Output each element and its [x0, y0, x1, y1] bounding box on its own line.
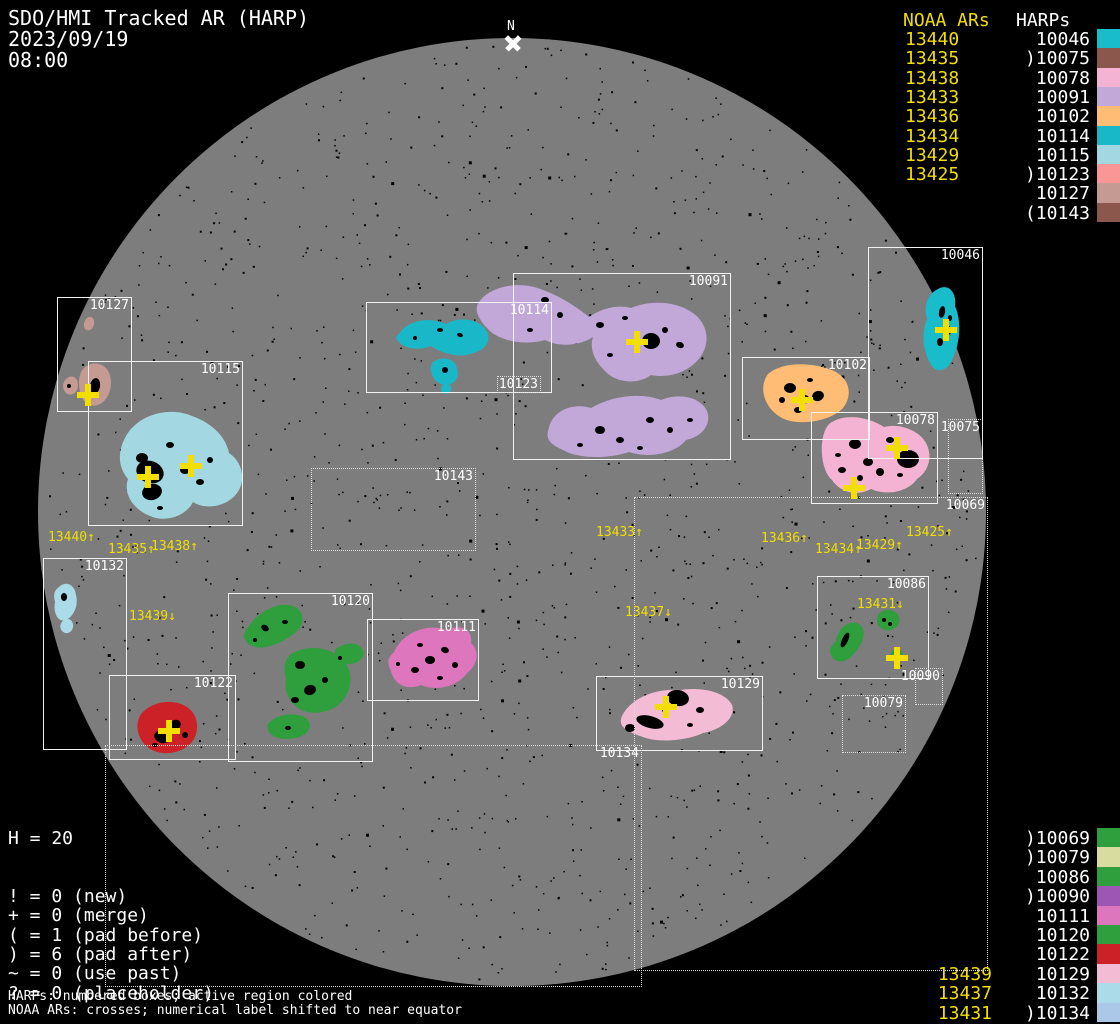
legend-harp-entry: 10078	[980, 69, 1090, 88]
legend-noaa-entry: 13433	[905, 88, 959, 107]
legend-harp-entry: 10129	[980, 965, 1090, 984]
harp-box-10111: 10111	[367, 619, 479, 701]
harp-box-label: 10127	[90, 299, 129, 312]
legend-color-swatch	[1097, 203, 1120, 223]
legend-noaa-entry: 13437	[902, 984, 992, 1003]
harp-box-label: 10091	[689, 275, 728, 288]
harp-box-label: 10115	[201, 363, 240, 376]
legend-harp-entry: 10120	[980, 926, 1090, 945]
harp-box-10143: 10143	[311, 468, 476, 551]
harp-box-10134: 10134	[105, 745, 642, 987]
harp-box-label: 10078	[896, 414, 935, 427]
harp-box-label: 10134	[600, 747, 639, 760]
legend-harp-entry: 10114	[980, 127, 1090, 146]
legend-noaa-entry: 13435	[905, 49, 959, 68]
legend-noaa-entry: 13438	[905, 69, 959, 88]
legend-color-swatch	[1097, 867, 1120, 887]
footnote-line: HARPs: numbered boxes; active region col…	[8, 990, 352, 1003]
harp-box-label: 10123	[499, 378, 538, 391]
legend-color-swatch	[1097, 1003, 1120, 1023]
legend-harp-entry: )10069	[980, 829, 1090, 848]
legend-harp-entry: )10075	[980, 49, 1090, 68]
legend-color-swatch	[1097, 145, 1120, 165]
noaa-shift-label: 13433↑	[596, 526, 643, 539]
legend-color-swatch	[1097, 164, 1120, 184]
harp-box-label: 10114	[510, 304, 549, 317]
legend-harp-entry: 10046	[980, 30, 1090, 49]
legend-harp-entry: 10115	[980, 146, 1090, 165]
noaa-shift-label: 13437↓	[625, 606, 672, 619]
time-label: 08:00	[8, 50, 68, 71]
legend-noaa-entry: 13434	[905, 127, 959, 146]
legend-color-swatch	[1097, 944, 1120, 964]
harp-box-10123: 10123	[497, 376, 541, 393]
harp-box-label: 10143	[434, 470, 473, 483]
legend-color-swatch	[1097, 886, 1120, 906]
harp-box-10120: 10120	[228, 593, 373, 762]
legend-harp-entry: 10102	[980, 107, 1090, 126]
legend-color-swatch	[1097, 828, 1120, 848]
legend-harp-entry: 10111	[980, 907, 1090, 926]
harp-box-10069: 10069	[634, 497, 988, 971]
noaa-shift-label: 13440↑	[48, 531, 95, 544]
legend-color-swatch	[1097, 925, 1120, 945]
noaa-cross	[886, 437, 908, 459]
noaa-shift-label: 13434↑	[815, 543, 862, 556]
harp-box-label: 10046	[941, 249, 980, 262]
legend-color-swatch	[1097, 906, 1120, 926]
noaa-shift-label: 13431↓	[857, 598, 904, 611]
harp-box-label: 10075	[941, 421, 980, 434]
north-marker-icon	[500, 30, 525, 55]
noaa-shift-label: 13436↑	[761, 532, 808, 545]
noaa-cross	[180, 455, 202, 477]
legend-harp-entry: 10127	[980, 184, 1090, 203]
legend-color-swatch	[1097, 126, 1120, 146]
legend-harp-entry: )10123	[980, 165, 1090, 184]
noaa-shift-label: 13439↓	[129, 610, 176, 623]
harp-box-10075: 10075	[948, 419, 983, 494]
noaa-ars-header: NOAA ARs	[903, 11, 990, 30]
annotation-overlay: SDO/HMI Tracked AR (HARP) 2023/09/19 08:…	[0, 0, 1120, 1024]
legend-harp-entry: (10143	[980, 204, 1090, 223]
harp-box-label: 10102	[828, 359, 867, 372]
noaa-cross	[791, 389, 813, 411]
legend-harp-entry: )10134	[980, 1004, 1090, 1023]
legend-color-swatch	[1097, 964, 1120, 984]
legend-noaa-entry: 13431	[902, 1004, 992, 1023]
h-count-label: H = 20	[8, 829, 73, 848]
legend-harp-entry: 10132	[980, 984, 1090, 1003]
legend-color-swatch	[1097, 87, 1120, 107]
legend-color-swatch	[1097, 847, 1120, 867]
noaa-cross	[77, 384, 99, 406]
noaa-shift-label: 13429↑	[856, 539, 903, 552]
legend-noaa-entry: 13440	[905, 30, 959, 49]
legend-color-swatch	[1097, 48, 1120, 68]
noaa-cross	[626, 331, 648, 353]
noaa-cross	[137, 466, 159, 488]
noaa-shift-label: 13438↑	[151, 540, 198, 553]
legend-harp-entry: )10090	[980, 887, 1090, 906]
legend-noaa-entry: 13425	[905, 165, 959, 184]
noaa-cross	[158, 720, 180, 742]
harp-box-label: 10120	[331, 595, 370, 608]
noaa-cross	[655, 696, 677, 718]
legend-noaa-entry: 13429	[905, 146, 959, 165]
noaa-cross	[935, 319, 957, 341]
legend-harp-entry: )10079	[980, 848, 1090, 867]
page-title: SDO/HMI Tracked AR (HARP)	[8, 8, 309, 29]
legend-noaa-entry: 13436	[905, 107, 959, 126]
legend-color-swatch	[1097, 106, 1120, 126]
legend-harp-entry: 10086	[980, 868, 1090, 887]
footnote-line: NOAA ARs: crosses; numerical label shift…	[8, 1004, 462, 1017]
harp-box-label: 10132	[85, 560, 124, 573]
date-label: 2023/09/19	[8, 29, 128, 50]
noaa-shift-label: 13435↑	[108, 543, 155, 556]
noaa-shift-label: 13425↑	[906, 526, 953, 539]
legend-harp-entry: 10122	[980, 945, 1090, 964]
legend-color-swatch	[1097, 183, 1120, 203]
harp-box-label: 10111	[437, 621, 476, 634]
harp-tracking-view: SDO/HMI Tracked AR (HARP) 2023/09/19 08:…	[0, 0, 1120, 1024]
legend-harp-entry: 10091	[980, 88, 1090, 107]
harps-header: HARPs	[1016, 11, 1070, 30]
harp-box-label: 10069	[946, 499, 985, 512]
legend-color-swatch	[1097, 29, 1120, 49]
legend-color-swatch	[1097, 68, 1120, 88]
noaa-cross	[843, 477, 865, 499]
noaa-cross	[886, 647, 908, 669]
legend-color-swatch	[1097, 983, 1120, 1003]
